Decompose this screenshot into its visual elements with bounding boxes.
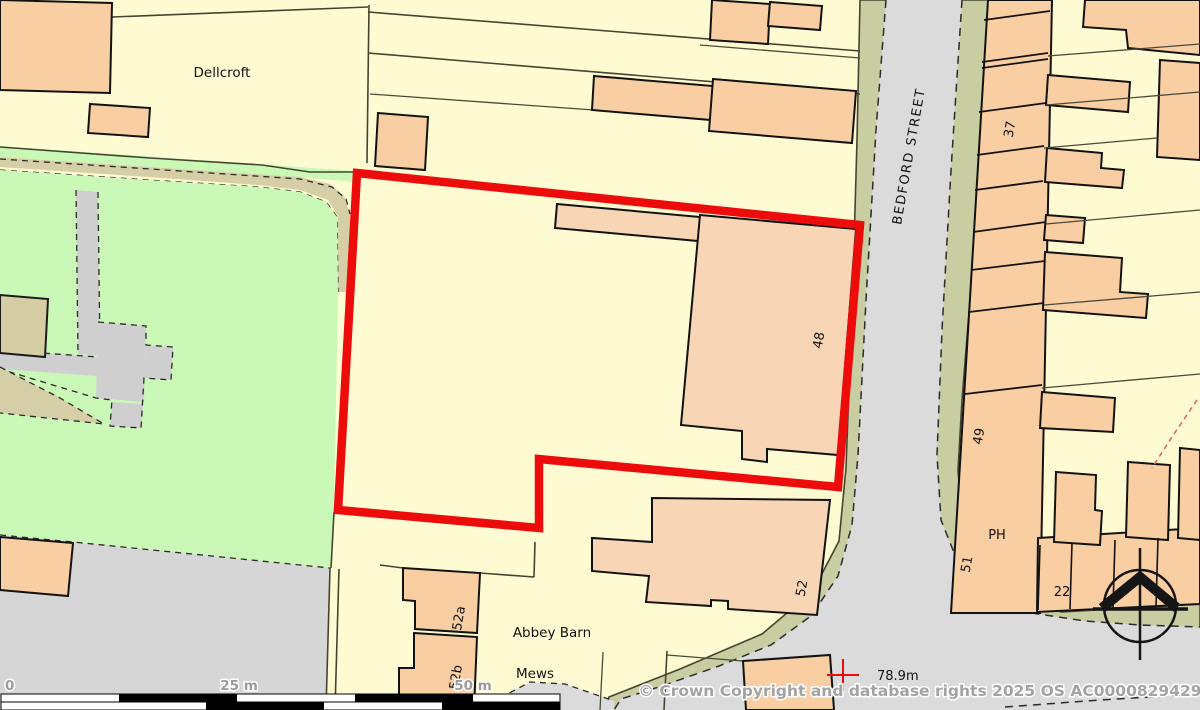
scale-50m-label: 50 m (454, 678, 492, 694)
label-52: 52 (794, 579, 812, 598)
terrace-ext-1 (1046, 75, 1130, 112)
label-ph: PH (988, 528, 1006, 543)
label-48: 48 (811, 331, 829, 350)
building-top-edge-2 (768, 2, 822, 30)
terrace-rear-strip (1157, 60, 1200, 160)
terrace-ext-5 (1040, 392, 1115, 432)
building-top-edge-1 (710, 0, 770, 44)
label-22: 22 (1054, 585, 1071, 600)
building-ext-f3 (1178, 448, 1200, 540)
label-37: 37 (1002, 120, 1020, 139)
building-ext-f1 (1054, 472, 1102, 545)
map-viewport[interactable]: Dellcroft BEDFORD STREET 37 48 52 49 PH … (0, 0, 1200, 710)
label-49: 49 (971, 427, 989, 446)
building-row-east (709, 79, 856, 143)
scale-25m-label: 25 m (220, 678, 258, 694)
os-map: Dellcroft BEDFORD STREET 37 48 52 49 PH … (0, 0, 1200, 710)
building-52a (403, 568, 480, 633)
outbuilding-left-edge (0, 295, 48, 357)
label-dellcroft: Dellcroft (194, 65, 251, 81)
scale-zero-label: 0 (5, 678, 14, 694)
copyright-text: © Crown Copyright and database rights 20… (638, 682, 1200, 700)
building-ext-f2 (1126, 462, 1170, 540)
label-mews: Mews (516, 666, 554, 682)
building-48 (681, 215, 856, 462)
terrace-ext-3 (1044, 215, 1085, 243)
building-small-west (375, 113, 428, 170)
label-abbey-barn: Abbey Barn (513, 625, 591, 641)
building-dellcroft-house (0, 0, 112, 93)
building-dellcroft-annex (88, 104, 150, 137)
building-on-yard (0, 537, 73, 596)
label-51: 51 (959, 555, 977, 574)
